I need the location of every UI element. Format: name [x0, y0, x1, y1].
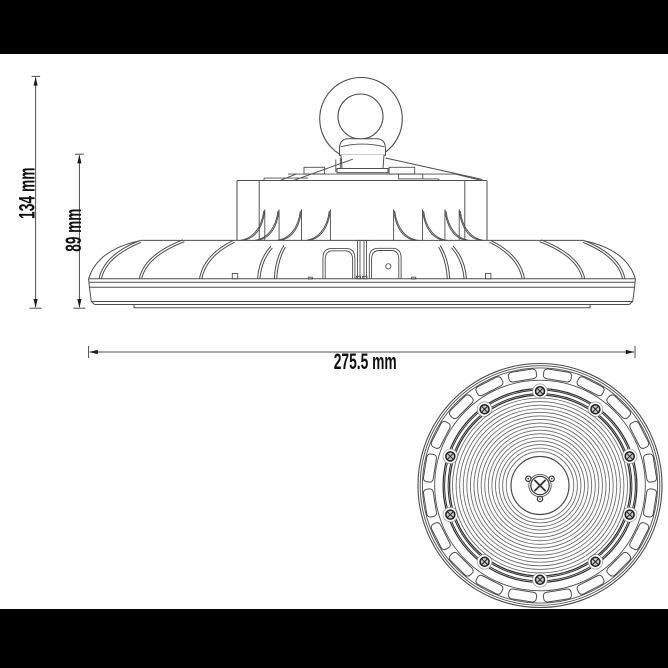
svg-text:89 mm: 89 mm — [61, 209, 86, 252]
svg-text:134 mm: 134 mm — [15, 167, 40, 219]
svg-text:275.5 mm: 275.5 mm — [334, 349, 397, 374]
